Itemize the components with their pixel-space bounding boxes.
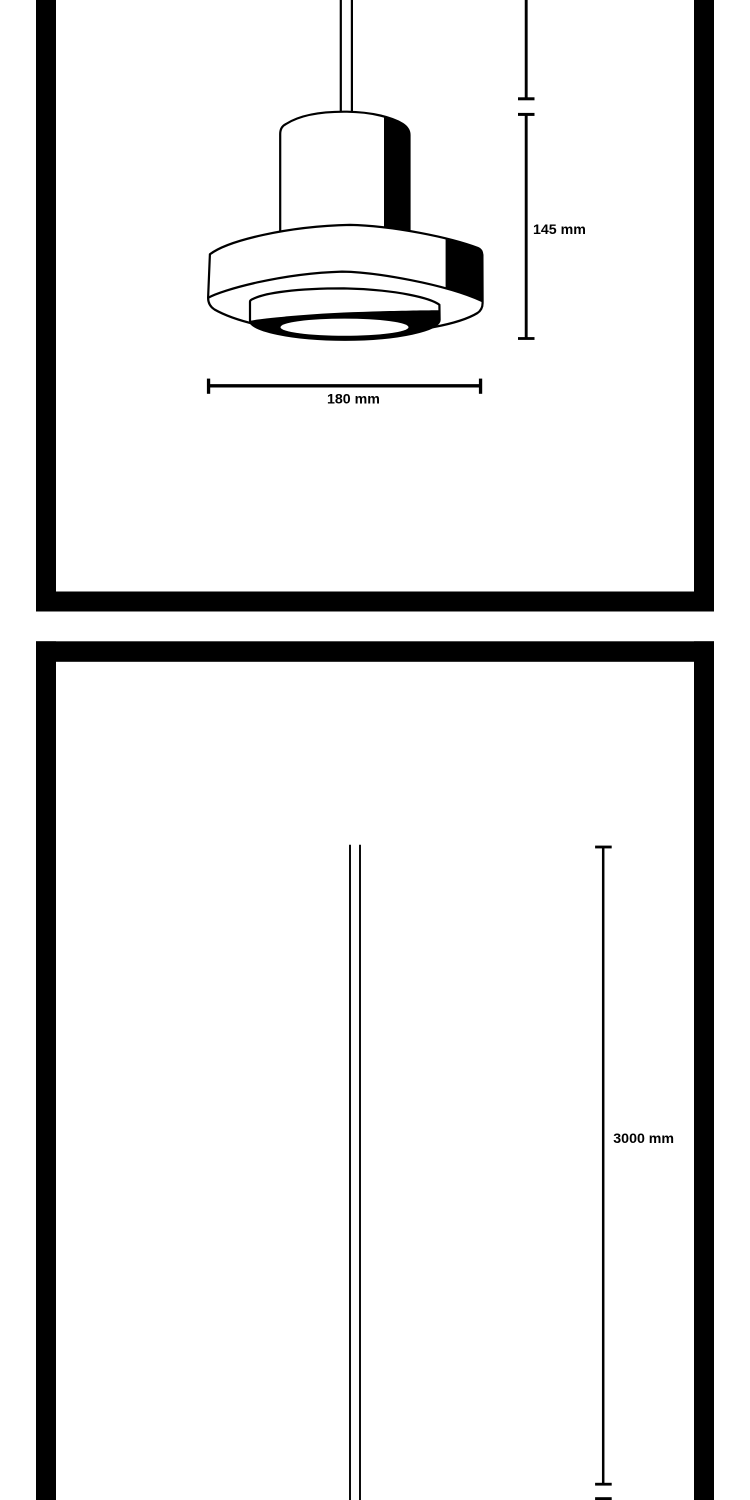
svg-text:145 mm: 145 mm <box>533 222 586 238</box>
svg-text:3000 mm: 3000 mm <box>613 1131 674 1147</box>
svg-text:180 mm: 180 mm <box>327 392 380 408</box>
